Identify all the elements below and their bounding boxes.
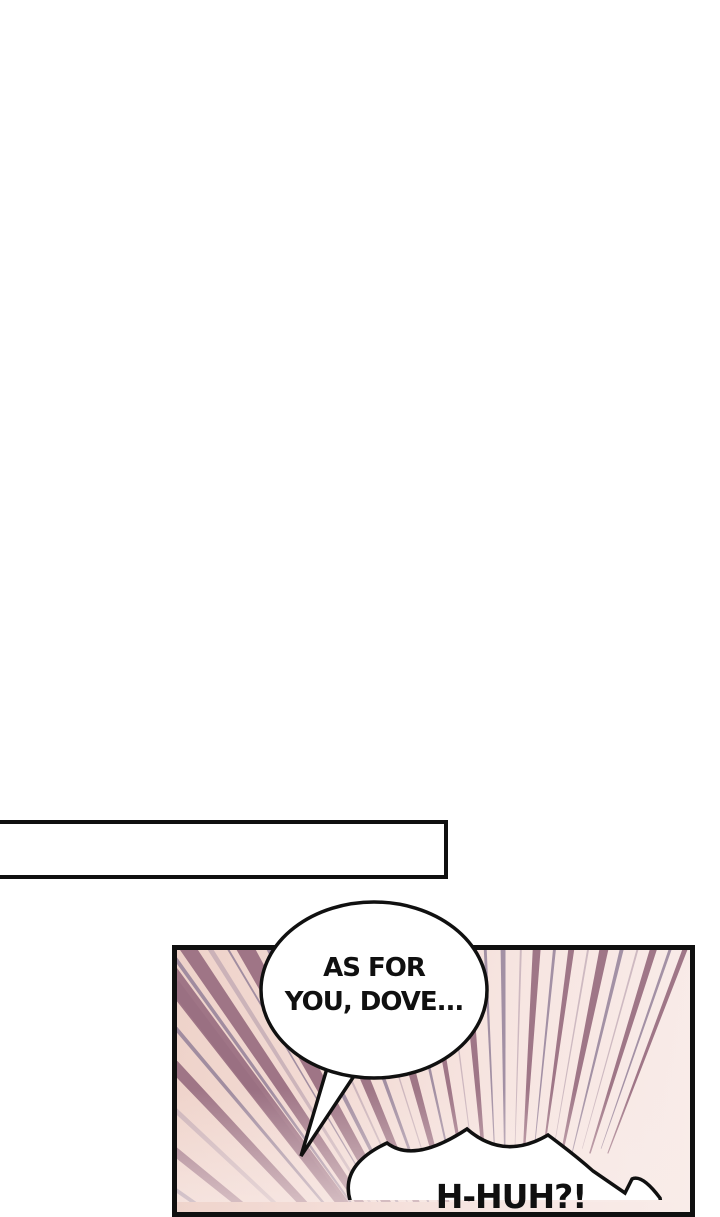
- speech-text-h-huh: H-HUH?!: [391, 1179, 631, 1215]
- speech-line-1: AS FOR: [254, 951, 494, 985]
- speech-bubble-tail: [301, 1065, 356, 1156]
- speech-line-2: YOU, DOVE...: [254, 985, 494, 1019]
- speech-text-as-for-you-dove: AS FOR YOU, DOVE...: [254, 951, 494, 1019]
- speech-bubble-layer: [150, 880, 720, 1200]
- comic-page: { "page": { "background": "#ffffff" }, "…: [0, 0, 720, 1197]
- empty-caption-box: [0, 820, 448, 879]
